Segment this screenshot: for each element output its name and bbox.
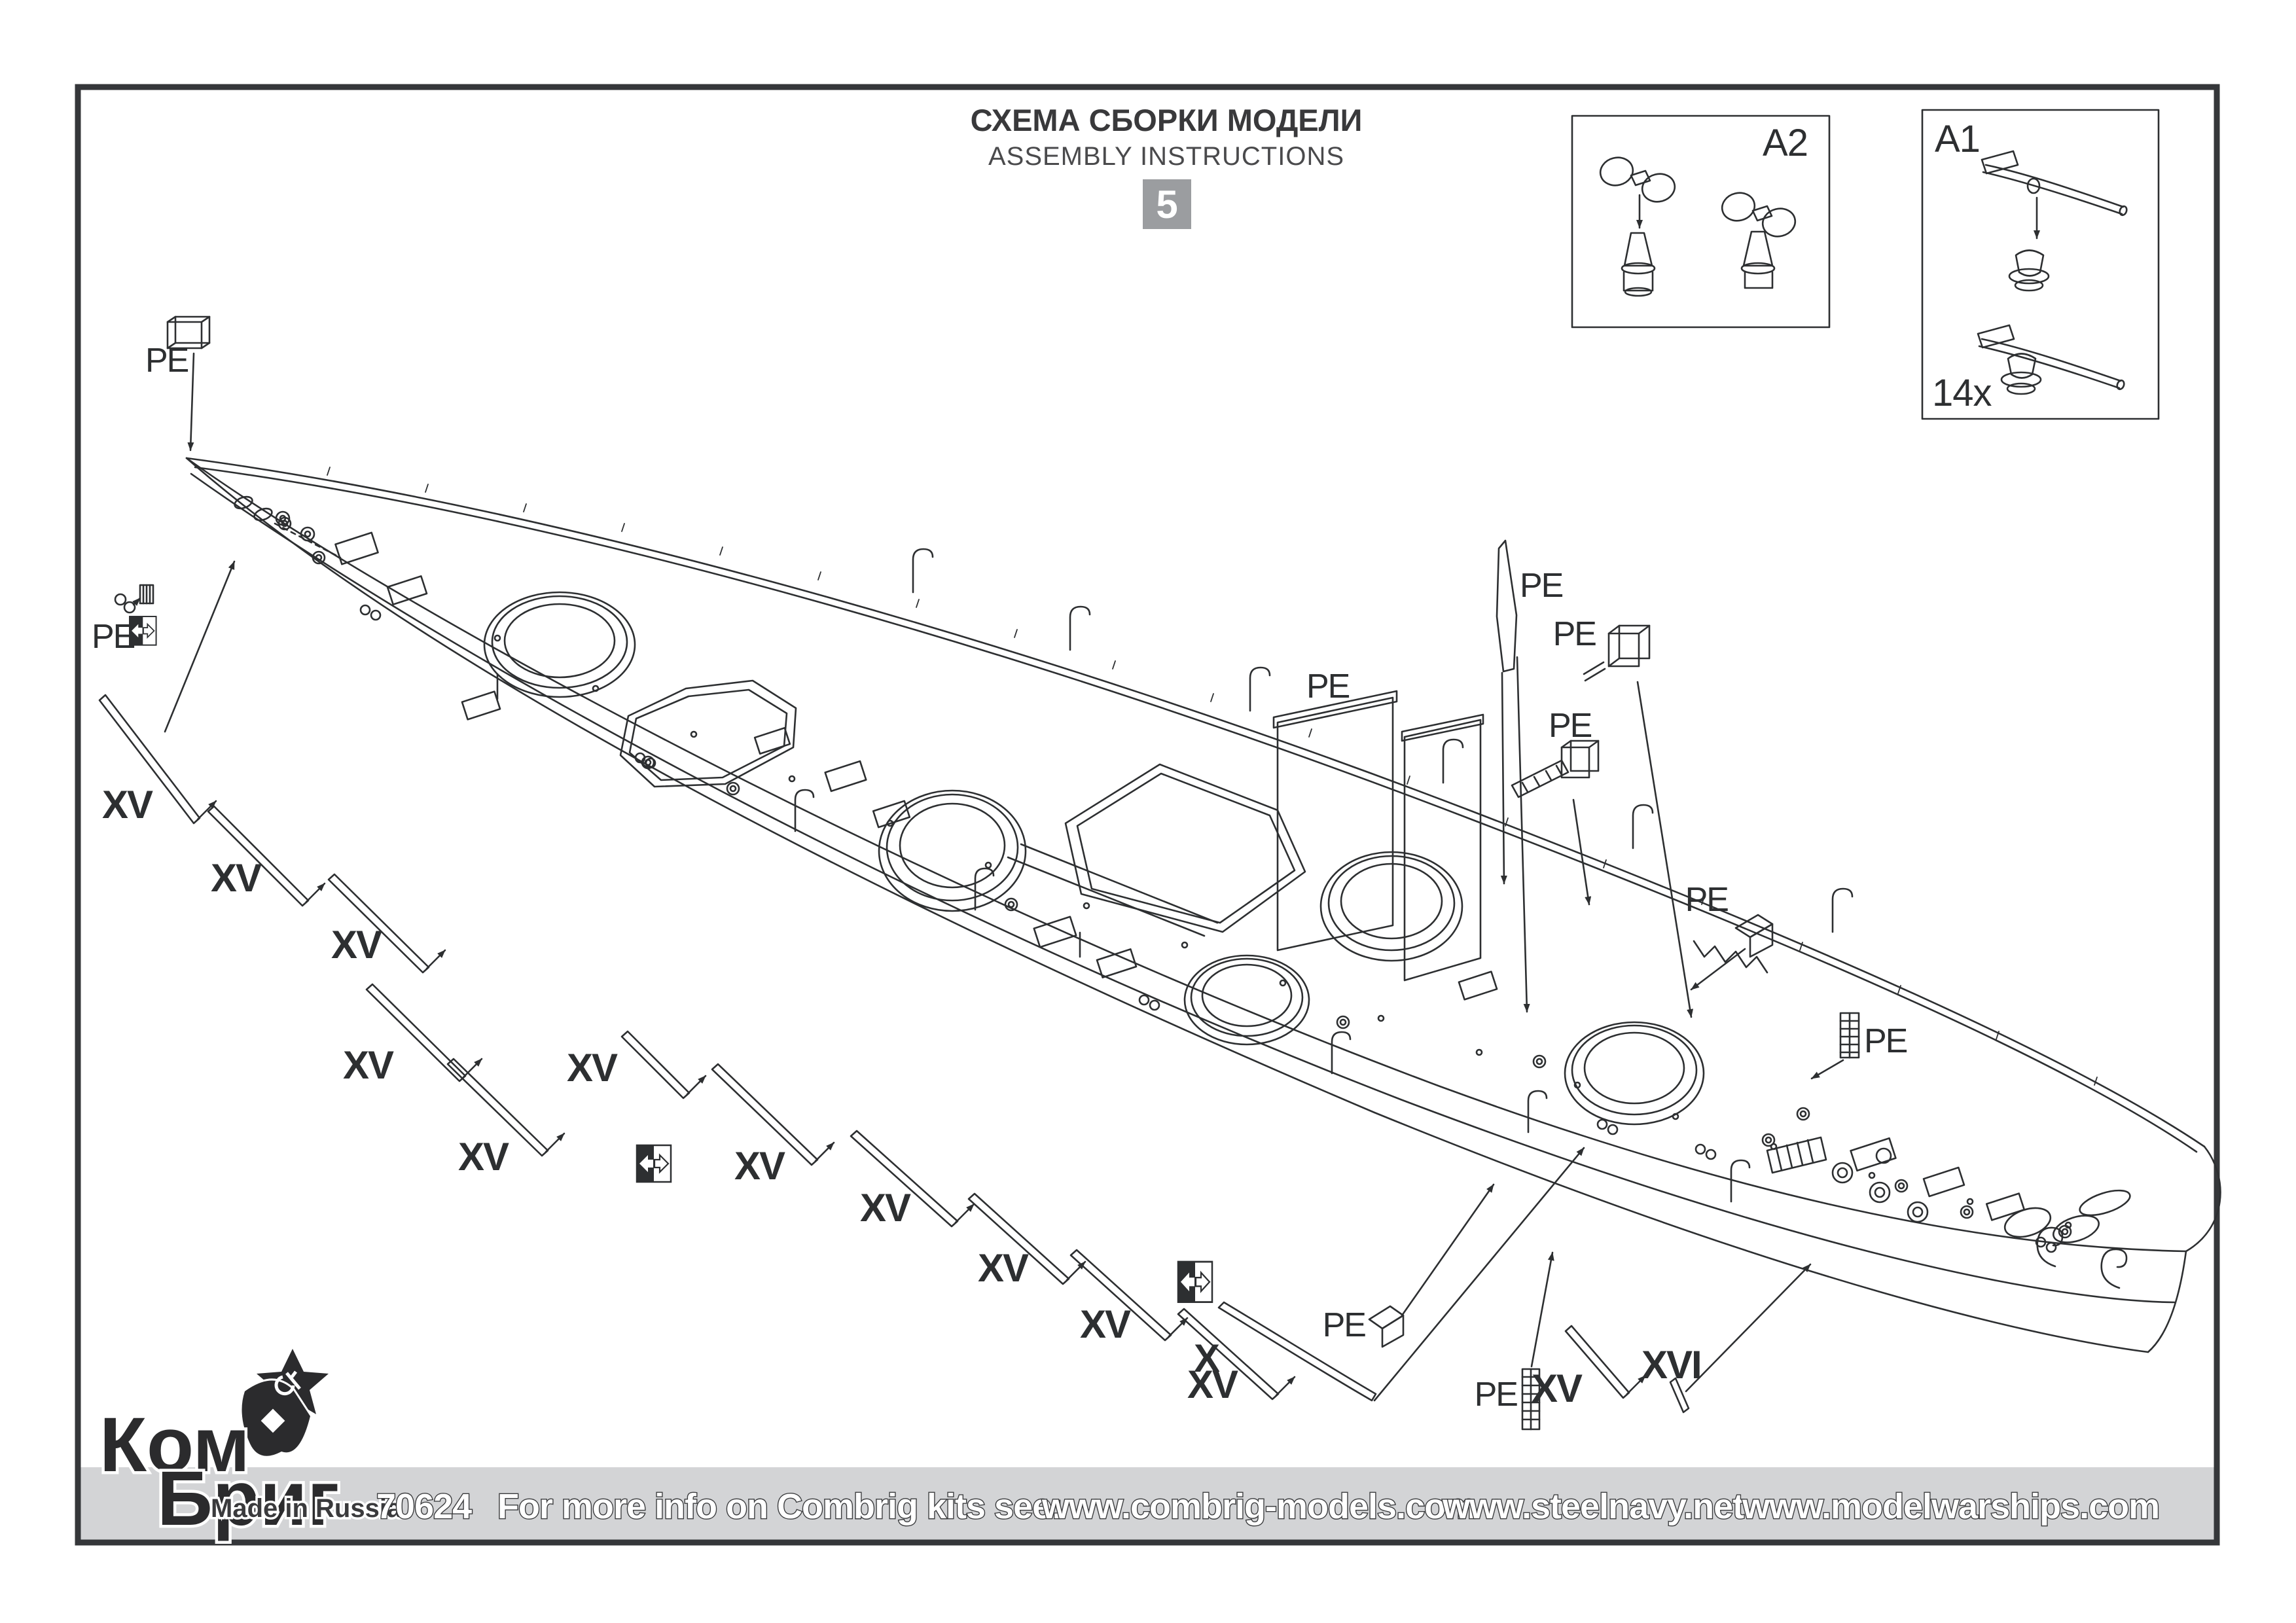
xvi-callout: XVI bbox=[1641, 1264, 1810, 1412]
pe-label: PE bbox=[1549, 707, 1592, 745]
xv-label: XV bbox=[331, 923, 382, 967]
deck-skylight-boxes bbox=[335, 533, 2024, 1221]
hull-bottom bbox=[187, 458, 2148, 1352]
xv-callout: XV bbox=[567, 1031, 706, 1098]
ship-drawing bbox=[187, 458, 2220, 1352]
barbette-ring-aft bbox=[1565, 1022, 1704, 1124]
xv-callout: XV bbox=[1071, 1250, 1187, 1346]
xv-long-leader bbox=[165, 562, 234, 732]
railing-stubs bbox=[327, 467, 2097, 1085]
detail-box-a1: A1 14x bbox=[1922, 110, 2159, 419]
searchlight-exploded-drawing bbox=[1598, 154, 1678, 296]
xv-label: XV bbox=[567, 1046, 618, 1090]
xv-callout: XV bbox=[329, 874, 445, 972]
barbette-ring-second bbox=[879, 791, 1026, 911]
pe-label: PE bbox=[1685, 881, 1729, 919]
kit-number: 70624 bbox=[376, 1487, 472, 1526]
detail-box-a1-quantity: 14x bbox=[1932, 372, 1992, 414]
barbette-ring-port-echelon bbox=[1185, 955, 1309, 1044]
title-block: СХЕМА СБОРКИ МОДЕЛИ ASSEMBLY INSTRUCTION… bbox=[971, 103, 1363, 229]
deck-edge-cleats bbox=[495, 635, 2071, 1228]
footer-website-modelwarships: www.modelwarships.com bbox=[1742, 1487, 2159, 1526]
logo-tagline: Made in Russia bbox=[211, 1494, 402, 1523]
page-title-en: ASSEMBLY INSTRUCTIONS bbox=[988, 142, 1344, 171]
xv-label: XV bbox=[1080, 1302, 1131, 1346]
pe-label: PE bbox=[1553, 615, 1596, 653]
pe-label: PE bbox=[1520, 567, 1563, 605]
pe-callout-funnel-panel: PE bbox=[1306, 668, 1350, 705]
detail-box-a2: A2 bbox=[1572, 116, 1829, 327]
instruction-sheet: СХЕМА СБОРКИ МОДЕЛИ ASSEMBLY INSTRUCTION… bbox=[0, 0, 2296, 1623]
xv-label: XV bbox=[978, 1246, 1029, 1290]
pe-label: PE bbox=[1475, 1376, 1518, 1414]
xv-callout: XV bbox=[208, 806, 325, 906]
xv-callout: XV bbox=[712, 1064, 834, 1188]
xv-label: XV bbox=[860, 1186, 911, 1230]
pe-label: PE bbox=[1306, 668, 1350, 705]
deck-edge-near bbox=[187, 458, 2186, 1251]
xv-label: XV bbox=[343, 1043, 394, 1087]
pe-callout-accommodation-ladder: PE bbox=[1812, 1013, 1907, 1079]
xv-callout: XV bbox=[343, 984, 482, 1087]
xv-label: XV bbox=[1532, 1366, 1583, 1410]
mirror-parts-icon bbox=[130, 616, 156, 645]
xv-label: XV bbox=[211, 856, 262, 900]
xv-callout: XV bbox=[1532, 1326, 1645, 1410]
x-callout: X bbox=[1194, 1148, 1584, 1400]
xv-callout: XV bbox=[969, 1194, 1085, 1290]
xvi-label: XVI bbox=[1641, 1343, 1701, 1387]
xv-callout: XV bbox=[851, 1131, 974, 1230]
x-label: X bbox=[1194, 1336, 1220, 1380]
searchlight-assembled-drawing bbox=[1719, 190, 1799, 288]
xv-callouts: XV XV XV XV XV XV XV bbox=[99, 562, 1645, 1410]
detail-box-a1-label: A1 bbox=[1935, 118, 1980, 160]
funnel-wall-panel-1 bbox=[1274, 691, 1397, 950]
step-number: 5 bbox=[1156, 183, 1177, 226]
deck-vents bbox=[279, 518, 2071, 1238]
barbette-ring-fore bbox=[484, 592, 635, 697]
mirror-parts-icon bbox=[637, 1145, 671, 1182]
pe-callout-bridge-frame: PE bbox=[1512, 707, 1598, 904]
footer-website-steelnavy: www.steelnavy.net bbox=[1442, 1487, 1744, 1526]
page-title-ru: СХЕМА СБОРКИ МОДЕЛИ bbox=[971, 103, 1363, 137]
gun-exploded-drawing bbox=[1982, 151, 2128, 291]
pe-label: PE bbox=[1864, 1022, 1907, 1060]
xv-label: XV bbox=[734, 1144, 785, 1188]
pe-callout-bow: PE bbox=[145, 317, 209, 450]
stern-transom bbox=[2148, 1147, 2220, 1352]
pe-label: PE bbox=[1323, 1306, 1366, 1344]
pe-callout-deck-hatch: PE bbox=[1323, 1185, 1494, 1347]
detail-box-a2-label: A2 bbox=[1763, 122, 1808, 164]
central-platform bbox=[1066, 764, 1305, 932]
footer-website-combrig: www.combrig-models.com bbox=[1041, 1487, 1476, 1526]
xv-label: XV bbox=[458, 1135, 509, 1179]
barbette-ring-starboard-echelon bbox=[1321, 852, 1462, 961]
xv-callout: XV bbox=[99, 695, 216, 827]
xv-label: XV bbox=[102, 783, 153, 827]
pe-label: PE bbox=[145, 342, 188, 380]
boat-davits bbox=[795, 549, 1852, 1202]
mirror-parts-icon bbox=[1178, 1262, 1212, 1302]
gun-assembled-drawing bbox=[1978, 325, 2125, 394]
pe-callout-platform-frame: PE bbox=[1553, 615, 1691, 1017]
footer-info: For more info on Combrig kits see: bbox=[497, 1487, 1062, 1526]
footer: 70624 For more info on Combrig kits see:… bbox=[376, 1487, 2159, 1526]
pe-label: PE bbox=[92, 618, 135, 656]
